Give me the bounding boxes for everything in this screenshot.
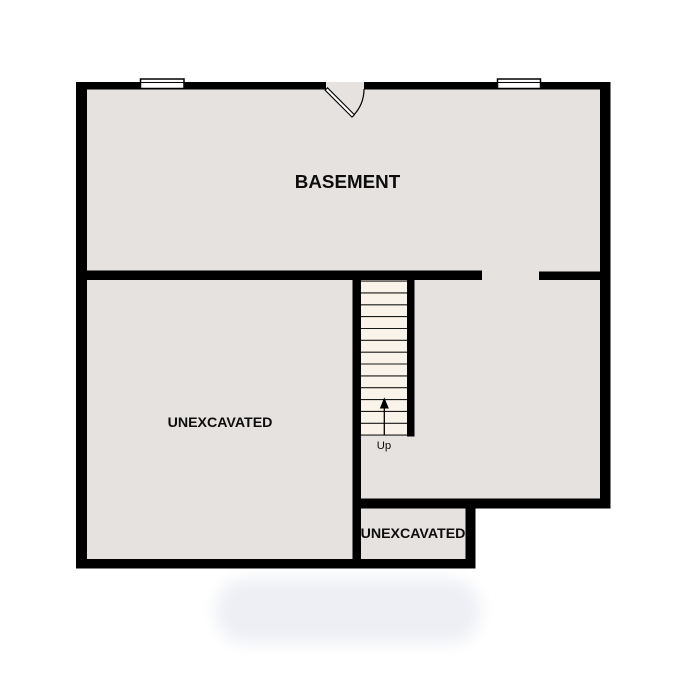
svg-text:UNEXCAVATED: UNEXCAVATED xyxy=(168,415,273,431)
svg-text:UNEXCAVATED: UNEXCAVATED xyxy=(361,526,466,542)
svg-text:Up: Up xyxy=(377,440,391,452)
svg-text:BASEMENT: BASEMENT xyxy=(295,171,401,192)
